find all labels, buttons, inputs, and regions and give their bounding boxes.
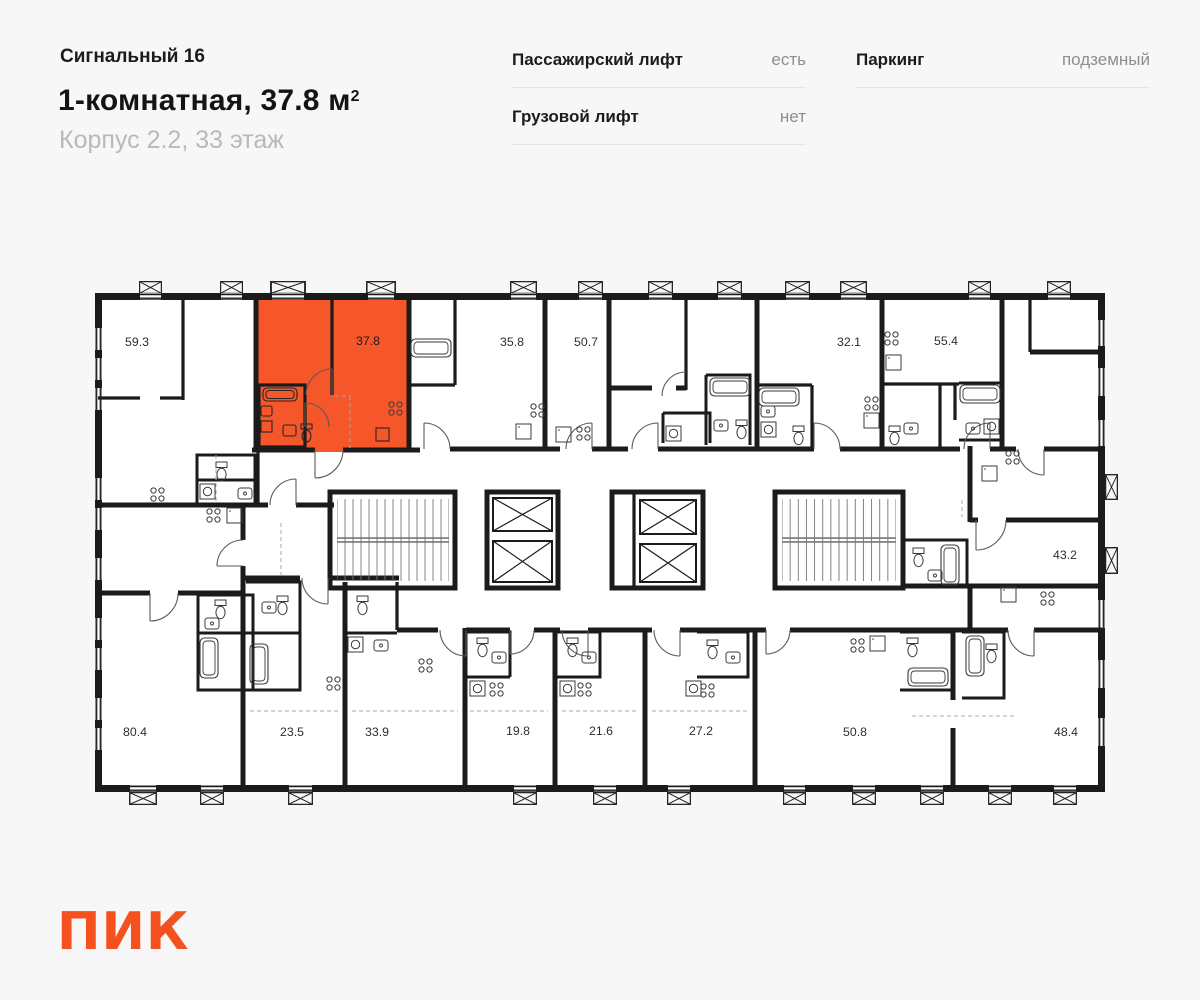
unit-area-label: 80.4: [123, 725, 147, 739]
apartment-floorplan-page: Сигнальный 16 1-комнатная, 37.8 м2 Корпу…: [0, 0, 1200, 1000]
unit-area-label: 50.7: [574, 335, 598, 349]
unit-area-label: 48.4: [1054, 725, 1078, 739]
selected-unit-area-label: 37.8: [356, 334, 380, 348]
unit-area-label: 23.5: [280, 725, 304, 739]
unit-area-label: 19.8: [506, 724, 530, 738]
unit-area-label: 43.2: [1053, 548, 1077, 562]
building-base: [95, 293, 1105, 792]
unit-area-label: 59.3: [125, 335, 149, 349]
pik-logo[interactable]: ПИК: [57, 906, 190, 958]
unit-area-label: 50.8: [843, 725, 867, 739]
floorplan-drawing: 59.3 37.8 35.8 50.7 32.1 55.4 43.2 80.4 …: [0, 0, 1200, 1000]
unit-area-label: 32.1: [837, 335, 861, 349]
unit-area-label: 21.6: [589, 724, 613, 738]
unit-area-label: 27.2: [689, 724, 713, 738]
unit-area-label: 33.9: [365, 725, 389, 739]
unit-area-label: 35.8: [500, 335, 524, 349]
unit-area-label: 55.4: [934, 334, 958, 348]
